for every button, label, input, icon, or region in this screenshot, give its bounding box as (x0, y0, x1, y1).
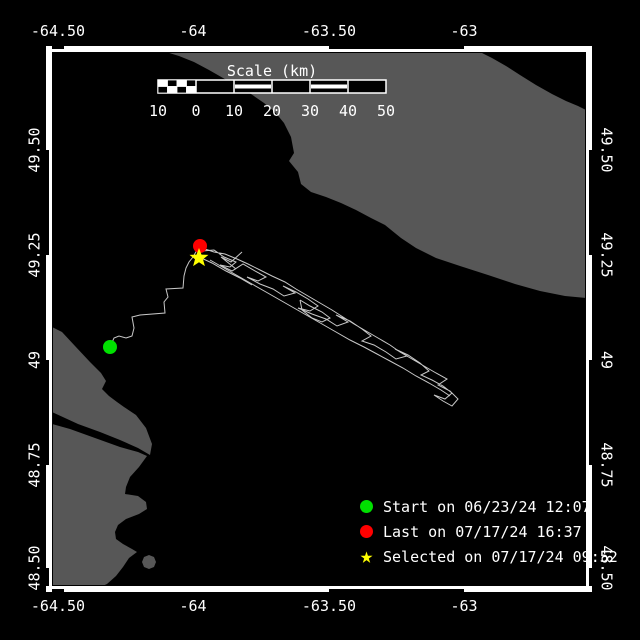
scale-tick-label: 10 (225, 102, 243, 120)
latitude-label-left: 49.50 (26, 127, 44, 172)
scale-checker-cell (187, 80, 197, 87)
latitude-label-left: 49.25 (26, 232, 44, 277)
scale-checker-cell (158, 80, 168, 87)
scale-checker-cell (168, 80, 178, 87)
scale-tick-label: 10 (149, 102, 167, 120)
scale-checker-cell (168, 87, 178, 94)
selected-star-icon: ★ (360, 550, 373, 563)
scale-tick-label: 30 (301, 102, 319, 120)
longitude-label-bottom: -64.50 (31, 597, 85, 615)
start-dot-icon (360, 500, 373, 513)
scale-tick-label: 40 (339, 102, 357, 120)
legend-start-label: Start on 06/23/24 12:07 (383, 498, 591, 516)
scale-checker-cell (177, 80, 187, 87)
scale-tick-label: 0 (191, 102, 200, 120)
scale-checker-cell (177, 87, 187, 94)
small-island (142, 555, 156, 569)
longitude-label-bottom: -63.50 (302, 597, 356, 615)
legend: Start on 06/23/24 12:07 Last on 07/17/24… (360, 494, 618, 569)
longitude-label-bottom: -64 (179, 597, 206, 615)
latitude-label-right: 49.25 (598, 232, 616, 277)
scale-bar-title: Scale (km) (180, 62, 364, 80)
last-dot-icon (360, 525, 373, 538)
scale-stripe (235, 85, 271, 89)
longitude-label-top: -64.50 (31, 22, 85, 40)
legend-item-last: Last on 07/17/24 16:37 (360, 519, 618, 544)
scale-tick-label: 50 (377, 102, 395, 120)
legend-item-selected: ★ Selected on 07/17/24 09:52 (360, 544, 618, 569)
latitude-label-left: 48.75 (26, 442, 44, 487)
legend-selected-label: Selected on 07/17/24 09:52 (383, 548, 618, 566)
latitude-label-right: 49.50 (598, 127, 616, 172)
scale-tick-label: 20 (263, 102, 281, 120)
longitude-label-top: -63.50 (302, 22, 356, 40)
longitude-label-top: -64 (179, 22, 206, 40)
latitude-label-right: 48.75 (598, 442, 616, 487)
latitude-label-right: 49 (598, 351, 616, 369)
track-map-screenshot: -64.50-64.50-64-64-63.50-63.50-63-6349.5… (0, 0, 640, 640)
scale-checker-cell (158, 87, 168, 94)
latitude-label-left: 49 (26, 351, 44, 369)
scale-stripe (311, 85, 347, 89)
legend-item-start: Start on 06/23/24 12:07 (360, 494, 618, 519)
longitude-label-bottom: -63 (450, 597, 477, 615)
longitude-label-top: -63 (450, 22, 477, 40)
scale-checker-cell (187, 87, 197, 94)
latitude-label-left: 48.50 (26, 545, 44, 590)
legend-last-label: Last on 07/17/24 16:37 (383, 523, 582, 541)
start-marker (103, 340, 117, 354)
